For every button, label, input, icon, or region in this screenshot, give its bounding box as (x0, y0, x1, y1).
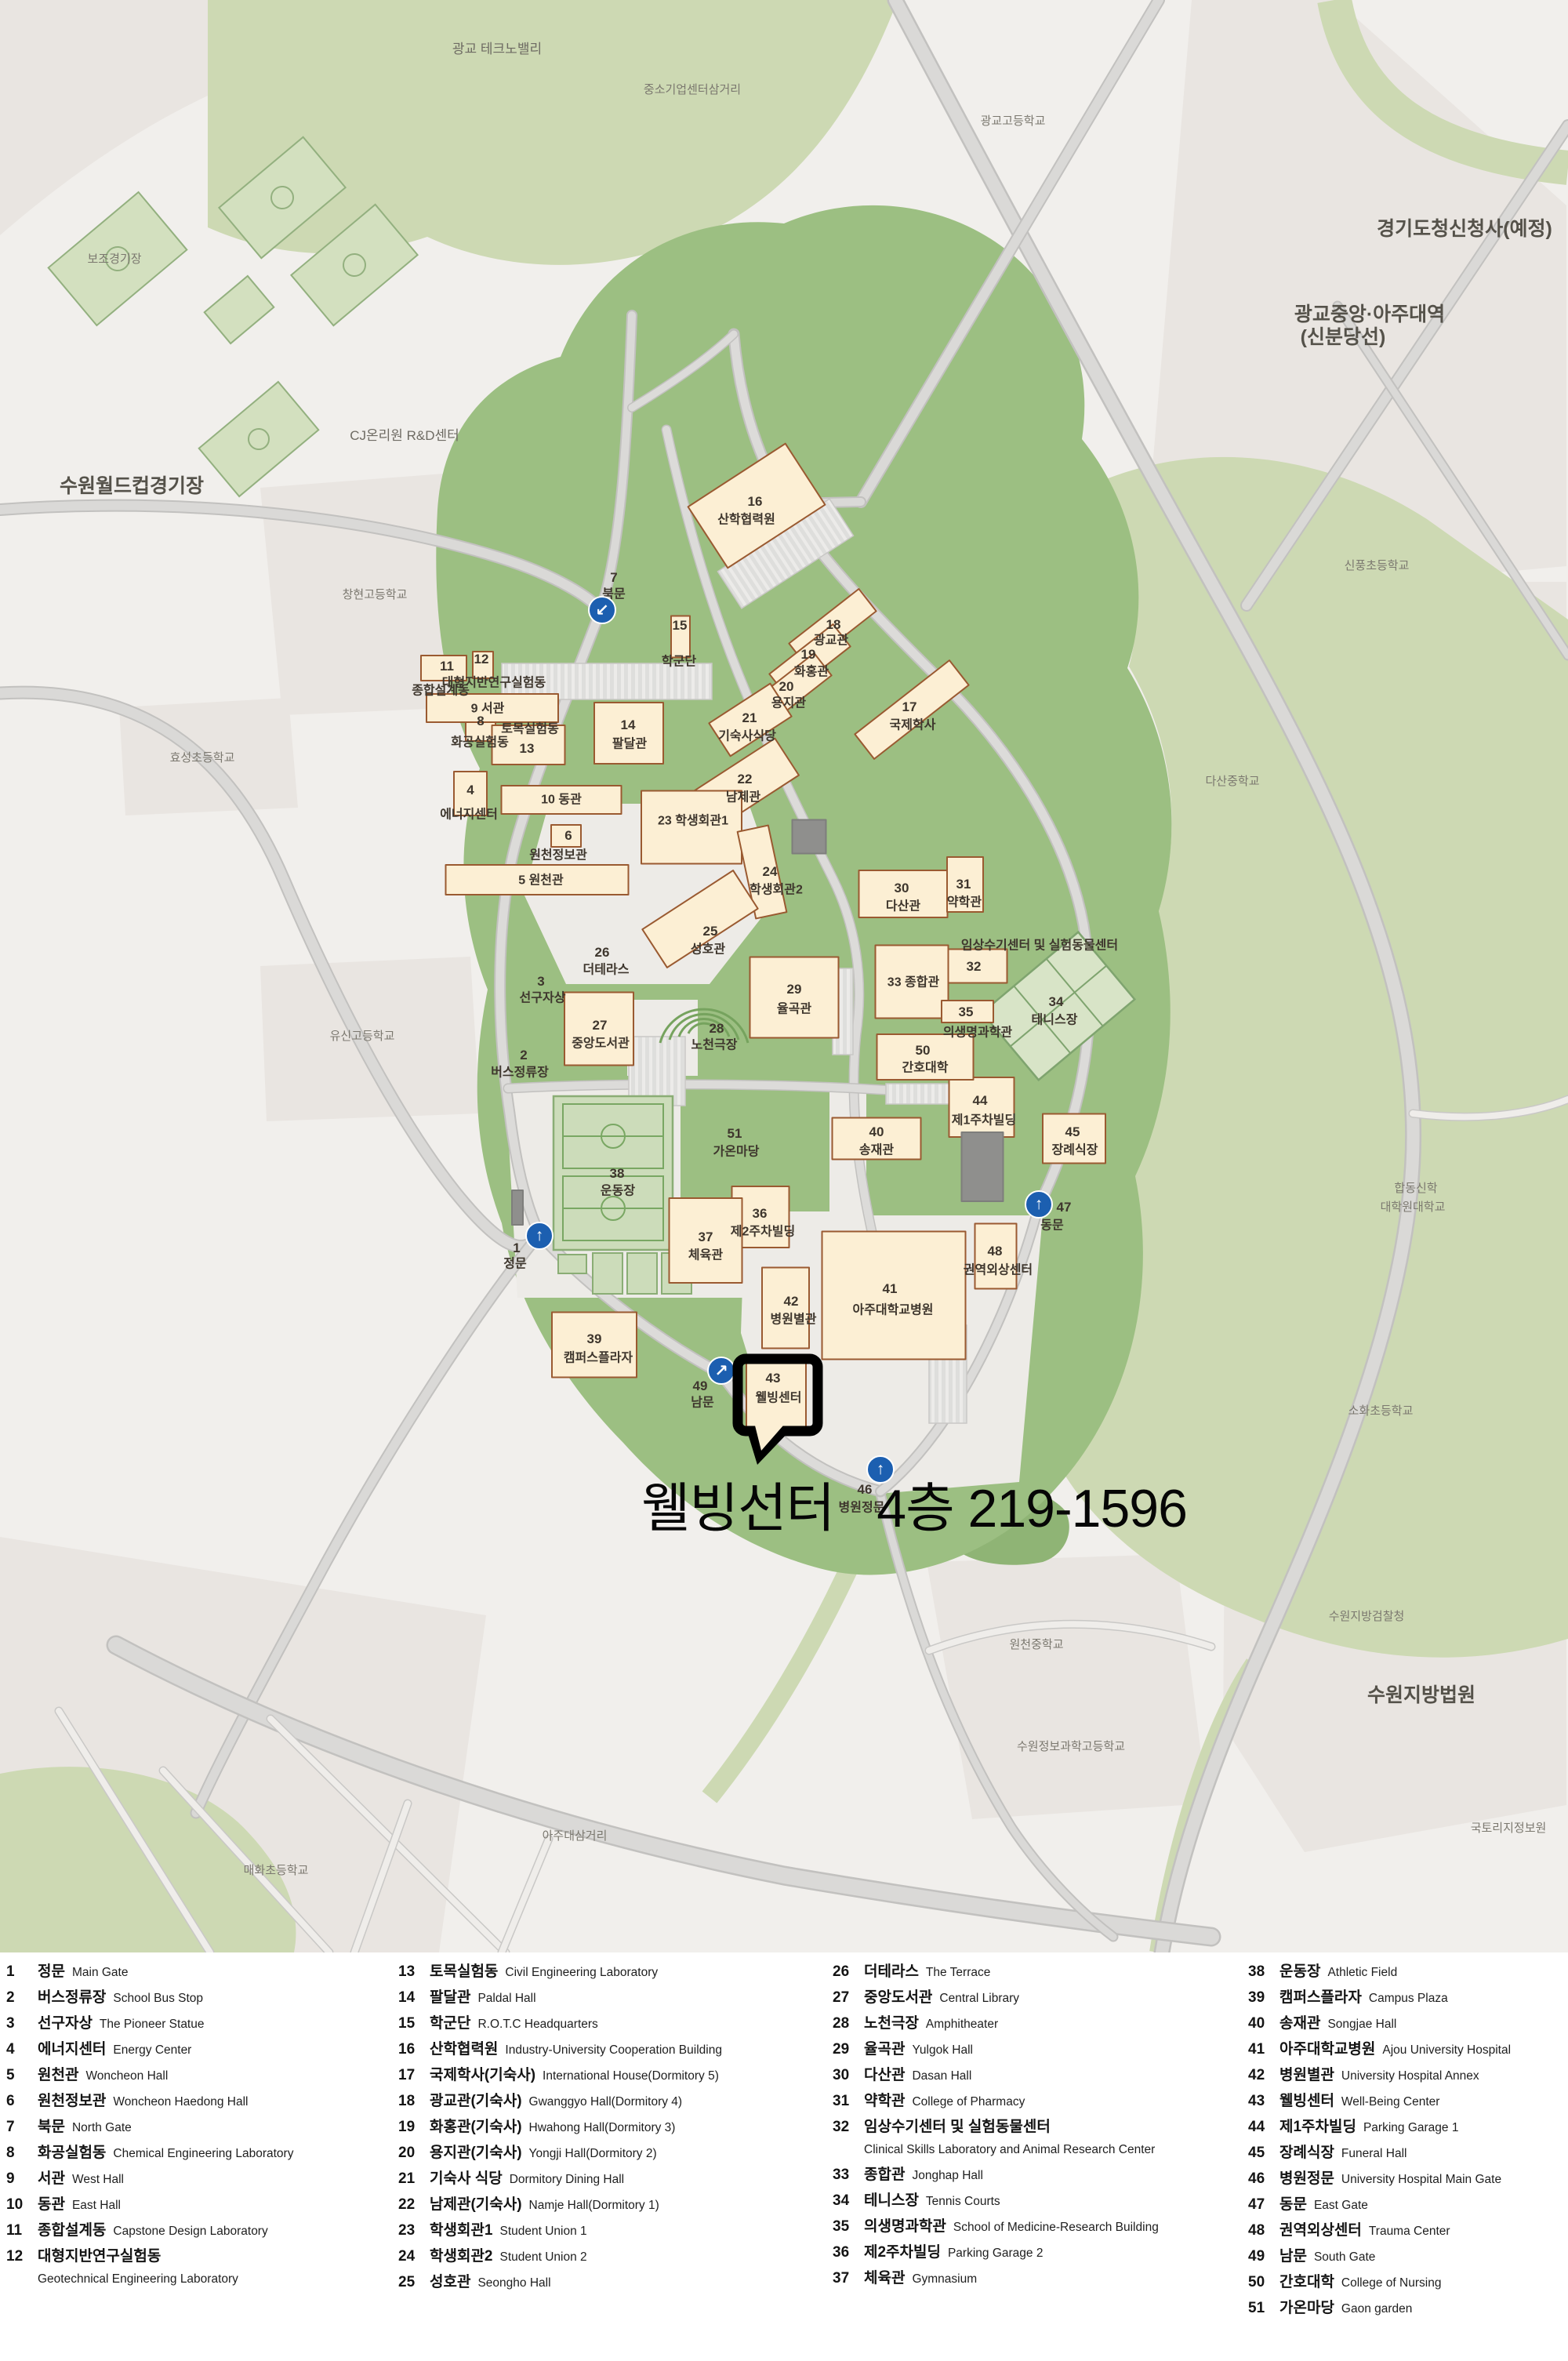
legend-item-korean: 성호관 (430, 2274, 470, 2290)
legend-item-english: Capstone Design Laboratory (113, 2225, 267, 2238)
legend-item-english: College of Nursing (1341, 2276, 1442, 2290)
legend-item-korean: 중앙도서관 (864, 1989, 932, 2006)
legend-item-english: Trauma Center (1369, 2225, 1450, 2238)
legend-item-40: 40송재관Songjae Hall (1248, 2015, 1511, 2033)
legend-item-number: 38 (1248, 1963, 1279, 1981)
legend-item-29: 29율곡관Yulgok Hall (833, 2041, 1159, 2059)
legend-item-22: 22남제관(기숙사)Namje Hall(Dormitory 1) (398, 2196, 722, 2214)
legend-item-english: Parking Garage 2 (948, 2247, 1044, 2260)
legend-item-korean: 기숙사 식당 (430, 2170, 503, 2187)
legend-item-korean: 테니스장 (864, 2192, 919, 2209)
legend-item-6: 6원천정보관Woncheon Haedong Hall (6, 2093, 293, 2111)
legend-item-number: 16 (398, 2041, 430, 2058)
legend-item-korean: 남문 (1279, 2248, 1307, 2265)
legend-item-korean: 병원정문 (1279, 2170, 1334, 2187)
legend-item-50: 50간호대학College of Nursing (1248, 2274, 1511, 2292)
legend-item-korean: 병원별관 (1279, 2067, 1334, 2083)
legend-item-number: 25 (398, 2274, 430, 2291)
legend-item-35: 35의생명과학관School of Medicine-Research Buil… (833, 2218, 1159, 2236)
legend-item-42: 42병원별관University Hospital Annex (1248, 2067, 1511, 2085)
legend-item-english: College of Pharmacy (912, 2095, 1025, 2109)
legend-item-number: 14 (398, 1989, 430, 2007)
legend-item-number: 31 (833, 2093, 864, 2110)
legend-item-english: Woncheon Haedong Hall (113, 2095, 248, 2109)
legend-item-korean: 웰빙센터 (1279, 2093, 1334, 2109)
legend-item-english: Funeral Hall (1341, 2147, 1407, 2160)
legend-item-english: Gymnasium (912, 2272, 977, 2286)
legend-item-english: Well-Being Center (1341, 2095, 1440, 2109)
legend-item-number: 18 (398, 2093, 430, 2110)
legend-item-english: South Gate (1314, 2250, 1375, 2264)
legend-item-number: 13 (398, 1963, 430, 1981)
legend-item-9: 9서관West Hall (6, 2170, 293, 2188)
legend-item-english: International House(Dormitory 5) (543, 2069, 719, 2083)
legend-item-korean: 에너지센터 (38, 2041, 106, 2058)
legend-item-english: Athletic Field (1327, 1966, 1397, 1979)
legend-item-korean: 제1주차빌딩 (1279, 2119, 1356, 2135)
legend-item-english: Gaon garden (1341, 2302, 1413, 2316)
legend-item-english: Geotechnical Engineering Laboratory (38, 2271, 293, 2288)
legend-item-english: Main Gate (72, 1966, 129, 1979)
legend-item-english: Central Library (939, 1992, 1019, 2005)
legend-item-number: 22 (398, 2196, 430, 2214)
legend-item-number: 29 (833, 2041, 864, 2058)
legend-item-33: 33종합관Jonghap Hall (833, 2167, 1159, 2185)
legend-item-43: 43웰빙센터Well-Being Center (1248, 2093, 1511, 2111)
legend-item-14: 14팔달관Paldal Hall (398, 1989, 722, 2007)
legend-item-number: 26 (833, 1963, 864, 1981)
legend-item-38: 38운동장Athletic Field (1248, 1963, 1511, 1981)
legend-item-english: Clinical Skills Laboratory and Animal Re… (864, 2141, 1159, 2159)
highlight-box (0, 0, 1568, 1952)
legend-item-english: University Hospital Main Gate (1341, 2173, 1501, 2186)
legend-item-48: 48권역외상센터Trauma Center (1248, 2222, 1511, 2240)
legend-item-number: 10 (6, 2196, 38, 2214)
campus-map-screenshot: 광교 테크노밸리중소기업센터삼거리광교고등학교경기도청신청사(예정)광교중앙·아… (0, 0, 1568, 2361)
legend-item-korean: 제2주차빌딩 (864, 2244, 941, 2261)
legend-item-english: Chemical Engineering Laboratory (113, 2147, 293, 2160)
legend-item-korean: 학군단 (430, 2015, 470, 2032)
legend-item-english: Paldal Hall (477, 1992, 535, 2005)
legend-item-korean: 정문 (38, 1963, 65, 1980)
legend-item-korean: 간호대학 (1279, 2274, 1334, 2290)
legend-item-korean: 더테라스 (864, 1963, 919, 1980)
legend-item-korean: 권역외상센터 (1279, 2222, 1362, 2239)
legend-item-korean: 종합설계동 (38, 2222, 106, 2239)
legend-item-english: Student Union 1 (500, 2225, 587, 2238)
legend-column-2: 13토목실험동Civil Engineering Laboratory14팔달관… (398, 1963, 722, 2300)
legend-item-number: 17 (398, 2067, 430, 2084)
legend-item-1: 1정문Main Gate (6, 1963, 293, 1981)
legend-item-8: 8화공실험동Chemical Engineering Laboratory (6, 2145, 293, 2163)
legend-item-number: 30 (833, 2067, 864, 2084)
legend-item-number: 43 (1248, 2093, 1279, 2110)
legend-column-4: 38운동장Athletic Field39캠퍼스플라자Campus Plaza4… (1248, 1963, 1511, 2326)
annotation-text: 웰빙선터4층 219-1596 (641, 1465, 1187, 1542)
legend-item-korean: 팔달관 (430, 1989, 470, 2006)
legend-item-21: 21기숙사 식당Dormitory Dining Hall (398, 2170, 722, 2188)
legend-item-number: 46 (1248, 2170, 1279, 2188)
legend-item-korean: 의생명과학관 (864, 2218, 946, 2235)
legend-item-number: 49 (1248, 2248, 1279, 2265)
legend-item-number: 5 (6, 2067, 38, 2084)
legend-item-english: School Bus Stop (113, 1992, 203, 2005)
legend-item-korean: 동관 (38, 2196, 65, 2213)
legend-item-english: North Gate (72, 2121, 132, 2134)
legend-item-number: 2 (6, 1989, 38, 2007)
legend-item-english: Industry-University Cooperation Building (505, 2043, 722, 2057)
legend-item-number: 50 (1248, 2274, 1279, 2291)
legend-item-english: Songjae Hall (1327, 2018, 1396, 2031)
legend-item-english: Tennis Courts (926, 2195, 1000, 2208)
legend-item-korean: 산학협력원 (430, 2041, 498, 2058)
legend-item-korean: 북문 (38, 2119, 65, 2135)
legend-item-17: 17국제학사(기숙사)International House(Dormitory… (398, 2067, 722, 2085)
legend-item-32: 32임상수기센터 및 실험동물센터Clinical Skills Laborat… (833, 2119, 1159, 2159)
legend-item-english: School of Medicine-Research Building (953, 2221, 1159, 2234)
legend-item-number: 28 (833, 2015, 864, 2032)
legend-item-number: 39 (1248, 1989, 1279, 2007)
legend-item-korean: 아주대학교병원 (1279, 2041, 1375, 2058)
legend-item-4: 4에너지센터Energy Center (6, 2041, 293, 2059)
legend-item-korean: 학생회관1 (430, 2222, 493, 2239)
legend-item-number: 40 (1248, 2015, 1279, 2032)
legend-item-26: 26더테라스The Terrace (833, 1963, 1159, 1981)
legend-item-korean: 캠퍼스플라자 (1279, 1989, 1362, 2006)
legend-item-english: Hwahong Hall(Dormitory 3) (529, 2121, 676, 2134)
legend-item-korean: 대형지반연구실험동 (38, 2248, 161, 2265)
legend-item-english: Amphitheater (926, 2018, 998, 2031)
legend-item-10: 10동관East Hall (6, 2196, 293, 2214)
legend-item-25: 25성호관Seongho Hall (398, 2274, 722, 2292)
legend-item-english: Ajou University Hospital (1382, 2043, 1511, 2057)
legend-item-korean: 약학관 (864, 2093, 905, 2109)
legend-item-english: Dasan Hall (912, 2069, 971, 2083)
legend-item-korean: 동문 (1279, 2196, 1307, 2213)
legend-item-number: 9 (6, 2170, 38, 2188)
legend-item-24: 24학생회관2Student Union 2 (398, 2248, 722, 2266)
legend-item-english: The Pioneer Statue (100, 2018, 205, 2031)
legend-item-19: 19화홍관(기숙사)Hwahong Hall(Dormitory 3) (398, 2119, 722, 2137)
legend-item-number: 37 (833, 2270, 864, 2287)
legend-item-korean: 원천관 (38, 2067, 78, 2083)
legend-item-english: Energy Center (113, 2043, 191, 2057)
legend-item-49: 49남문South Gate (1248, 2248, 1511, 2266)
legend-item-39: 39캠퍼스플라자Campus Plaza (1248, 1989, 1511, 2007)
legend-column-3: 26더테라스The Terrace27중앙도서관Central Library2… (833, 1963, 1159, 2296)
legend-item-korean: 율곡관 (864, 2041, 905, 2058)
legend-item-5: 5원천관Woncheon Hall (6, 2067, 293, 2085)
legend-item-number: 6 (6, 2093, 38, 2110)
legend-item-korean: 임상수기센터 및 실험동물센터 (864, 2119, 1051, 2135)
legend-item-korean: 광교관(기숙사) (430, 2093, 522, 2109)
legend-item-44: 44제1주차빌딩Parking Garage 1 (1248, 2119, 1511, 2137)
legend-item-korean: 체육관 (864, 2270, 905, 2287)
legend-item-english: Campus Plaza (1369, 1992, 1448, 2005)
legend-item-number: 12 (6, 2248, 38, 2265)
legend-item-number: 47 (1248, 2196, 1279, 2214)
legend-item-korean: 용지관(기숙사) (430, 2145, 522, 2161)
legend-item-46: 46병원정문University Hospital Main Gate (1248, 2170, 1511, 2188)
annotation-floor-phone: 4층 219-1596 (877, 1479, 1187, 1538)
legend-item-korean: 다산관 (864, 2067, 905, 2083)
legend-item-korean: 서관 (38, 2170, 65, 2187)
legend-item-number: 19 (398, 2119, 430, 2136)
legend-item-english: Woncheon Hall (85, 2069, 168, 2083)
legend-item-english: Dormitory Dining Hall (510, 2173, 624, 2186)
legend-item-28: 28노천극장Amphitheater (833, 2015, 1159, 2033)
legend-item-english: Yulgok Hall (912, 2043, 973, 2057)
legend-item-3: 3선구자상The Pioneer Statue (6, 2015, 293, 2033)
legend-item-korean: 버스정류장 (38, 1989, 106, 2006)
legend-item-7: 7북문North Gate (6, 2119, 293, 2137)
legend-item-27: 27중앙도서관Central Library (833, 1989, 1159, 2007)
legend-item-korean: 송재관 (1279, 2015, 1320, 2032)
legend-item-english: Civil Engineering Laboratory (505, 1966, 658, 1979)
legend-item-korean: 화홍관(기숙사) (430, 2119, 522, 2135)
legend-item-english: Jonghap Hall (912, 2169, 982, 2182)
legend-item-13: 13토목실험동Civil Engineering Laboratory (398, 1963, 722, 1981)
legend-item-korean: 선구자상 (38, 2015, 93, 2032)
legend-item-korean: 화공실험동 (38, 2145, 106, 2161)
legend-item-15: 15학군단R.O.T.C Headquarters (398, 2015, 722, 2033)
legend-item-41: 41아주대학교병원Ajou University Hospital (1248, 2041, 1511, 2059)
legend-item-english: Seongho Hall (477, 2276, 550, 2290)
legend-item-number: 27 (833, 1989, 864, 2007)
legend-item-2: 2버스정류장School Bus Stop (6, 1989, 293, 2007)
legend-item-korean: 학생회관2 (430, 2248, 493, 2265)
legend-item-number: 48 (1248, 2222, 1279, 2239)
legend-item-number: 15 (398, 2015, 430, 2032)
legend-column-1: 1정문Main Gate2버스정류장School Bus Stop3선구자상Th… (6, 1963, 293, 2296)
legend-item-english: West Hall (72, 2173, 124, 2186)
legend-item-korean: 운동장 (1279, 1963, 1320, 1980)
legend-item-english: Yongji Hall(Dormitory 2) (529, 2147, 657, 2160)
legend-item-english: Namje Hall(Dormitory 1) (529, 2199, 659, 2212)
legend-item-korean: 종합관 (864, 2167, 905, 2183)
legend-item-english: The Terrace (926, 1966, 990, 1979)
campus-map: 광교 테크노밸리중소기업센터삼거리광교고등학교경기도청신청사(예정)광교중앙·아… (0, 0, 1568, 1952)
legend-item-korean: 원천정보관 (38, 2093, 106, 2109)
legend-item-31: 31약학관College of Pharmacy (833, 2093, 1159, 2111)
legend-item-number: 3 (6, 2015, 38, 2032)
legend-item-number: 4 (6, 2041, 38, 2058)
legend-item-number: 35 (833, 2218, 864, 2236)
legend-item-korean: 노천극장 (864, 2015, 919, 2032)
legend-item-number: 8 (6, 2145, 38, 2162)
legend-item-english: University Hospital Annex (1341, 2069, 1479, 2083)
legend-item-korean: 남제관(기숙사) (430, 2196, 522, 2213)
legend-item-number: 11 (6, 2222, 38, 2239)
legend-item-korean: 가온마당 (1279, 2300, 1334, 2316)
legend-item-korean: 토목실험동 (430, 1963, 498, 1980)
legend-item-english: East Hall (72, 2199, 121, 2212)
legend-item-english: East Gate (1314, 2199, 1368, 2212)
legend-item-english: Parking Garage 1 (1363, 2121, 1459, 2134)
legend-item-number: 36 (833, 2244, 864, 2261)
legend-item-korean: 국제학사(기숙사) (430, 2067, 535, 2083)
legend-item-20: 20용지관(기숙사)Yongji Hall(Dormitory 2) (398, 2145, 722, 2163)
legend-item-number: 33 (833, 2167, 864, 2184)
legend-item-36: 36제2주차빌딩Parking Garage 2 (833, 2244, 1159, 2262)
legend-item-number: 24 (398, 2248, 430, 2265)
legend-item-45: 45장례식장Funeral Hall (1248, 2145, 1511, 2163)
legend: 1정문Main Gate2버스정류장School Bus Stop3선구자상Th… (0, 1952, 1568, 2361)
legend-item-english: Student Union 2 (500, 2250, 587, 2264)
legend-item-number: 20 (398, 2145, 430, 2162)
legend-item-number: 41 (1248, 2041, 1279, 2058)
legend-item-number: 32 (833, 2119, 864, 2136)
legend-item-30: 30다산관Dasan Hall (833, 2067, 1159, 2085)
legend-item-number: 51 (1248, 2300, 1279, 2317)
legend-item-11: 11종합설계동Capstone Design Laboratory (6, 2222, 293, 2240)
legend-item-number: 44 (1248, 2119, 1279, 2136)
legend-item-number: 42 (1248, 2067, 1279, 2084)
legend-item-number: 21 (398, 2170, 430, 2188)
legend-item-12: 12대형지반연구실험동Geotechnical Engineering Labo… (6, 2248, 293, 2288)
legend-item-number: 23 (398, 2222, 430, 2239)
legend-item-51: 51가온마당Gaon garden (1248, 2300, 1511, 2318)
legend-item-23: 23학생회관1Student Union 1 (398, 2222, 722, 2240)
legend-item-number: 45 (1248, 2145, 1279, 2162)
legend-item-number: 34 (833, 2192, 864, 2210)
legend-item-english: Gwanggyo Hall(Dormitory 4) (529, 2095, 683, 2109)
legend-item-english: R.O.T.C Headquarters (477, 2018, 597, 2031)
legend-item-number: 7 (6, 2119, 38, 2136)
legend-item-korean: 장례식장 (1279, 2145, 1334, 2161)
legend-item-37: 37체육관Gymnasium (833, 2270, 1159, 2288)
legend-item-18: 18광교관(기숙사)Gwanggyo Hall(Dormitory 4) (398, 2093, 722, 2111)
annotation-building: 웰빙선터 (641, 1479, 834, 1538)
legend-item-number: 1 (6, 1963, 38, 1981)
legend-item-16: 16산학협력원Industry-University Cooperation B… (398, 2041, 722, 2059)
legend-item-34: 34테니스장Tennis Courts (833, 2192, 1159, 2210)
legend-item-47: 47동문East Gate (1248, 2196, 1511, 2214)
